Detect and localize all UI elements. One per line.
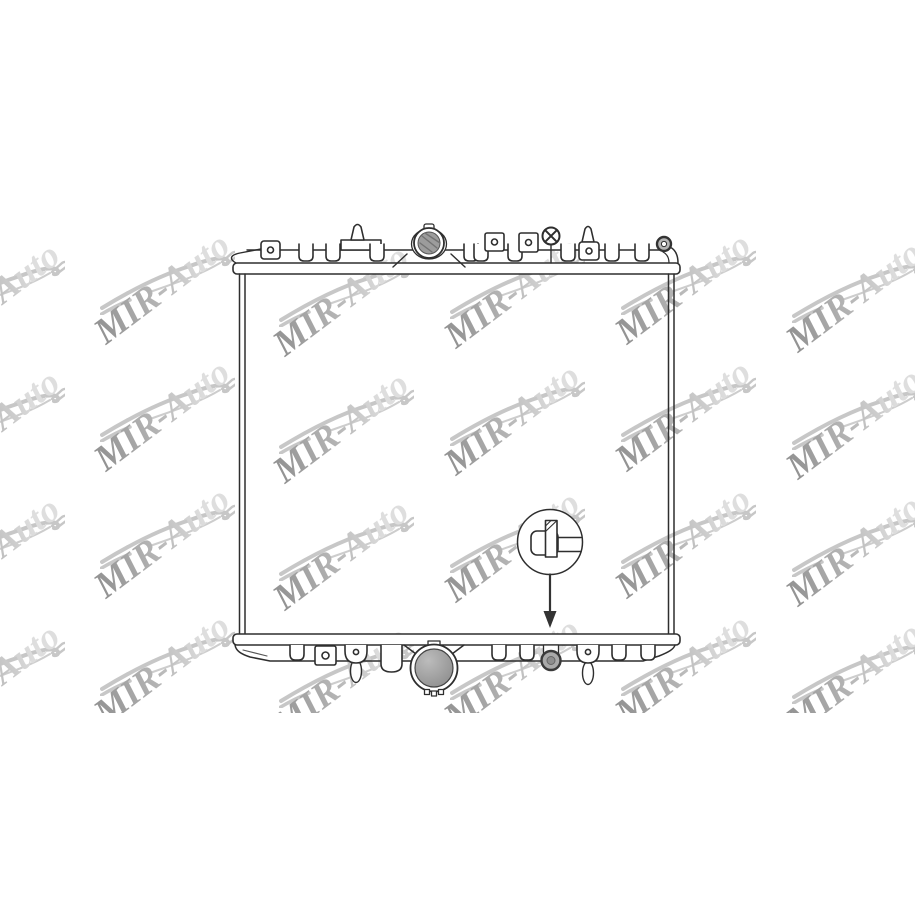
callout-arrow — [544, 575, 557, 629]
radiator-diagram — [0, 0, 915, 915]
peg-pin-left — [345, 645, 367, 683]
corner-ring — [657, 237, 678, 263]
top-tank — [231, 225, 680, 275]
peg-pin-right — [577, 645, 599, 685]
product-image: MIR-AutoMIR-AutoMIR-AutoMIR-AutoMIR-Auto… — [0, 0, 915, 915]
filler-cap — [393, 224, 465, 267]
outlet-port — [404, 641, 464, 696]
mounting-pin-right — [582, 227, 594, 243]
mounting-pin-left — [351, 225, 364, 241]
vent-plug-x — [543, 228, 560, 264]
drain-plug — [542, 645, 561, 670]
drain-plug-detail-callout — [518, 510, 583, 629]
radiator-core — [240, 274, 675, 634]
